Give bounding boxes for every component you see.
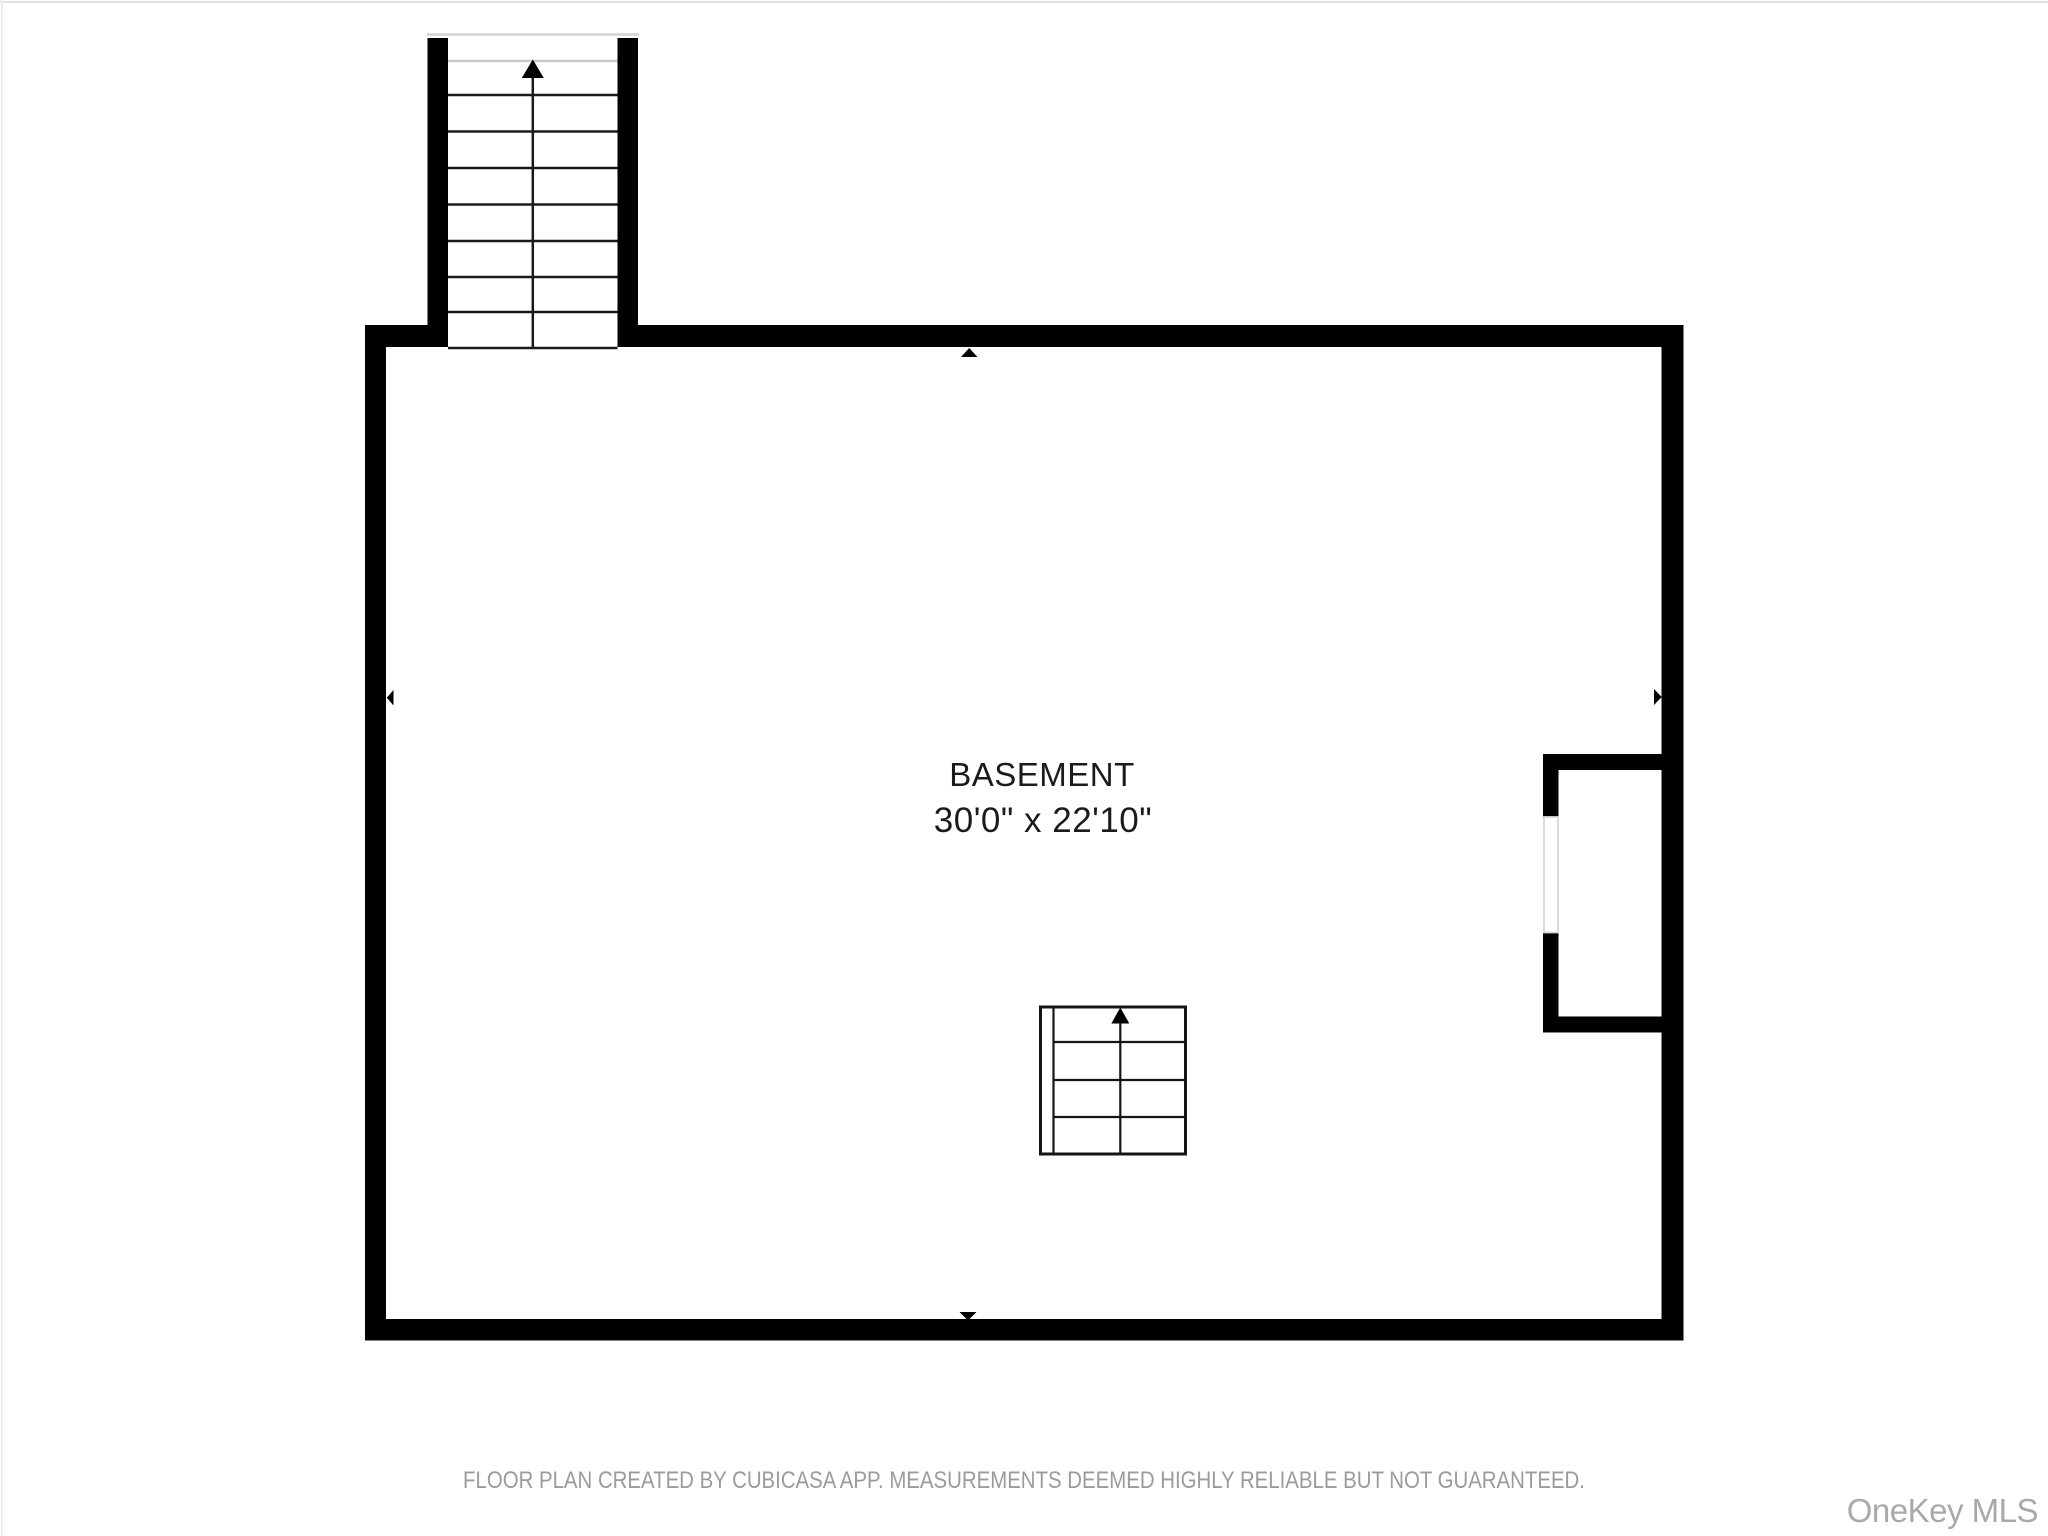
watermark-onekey-mls: OneKey MLS (1847, 1492, 2038, 1530)
wall-marker-right-icon (1654, 689, 1662, 705)
upper-staircase (427, 35, 639, 350)
floor-plan-canvas: BASEMENT 30'0" x 22'10" (0, 0, 2048, 1536)
room-name-label: BASEMENT (949, 756, 1135, 793)
bottom-wall (365, 1319, 1684, 1341)
floor-plan-page: BASEMENT 30'0" x 22'10" FLOOR PLAN CREAT… (0, 0, 2048, 1536)
right-wall (1662, 325, 1684, 1341)
basement-staircase (1041, 1007, 1186, 1154)
wall-marker-top-icon (961, 348, 978, 357)
alcove-left-wall-lower (1543, 933, 1559, 1033)
stairs-up-arrow-icon (522, 60, 544, 79)
footer-disclaimer: FLOOR PLAN CREATED BY CUBICASA APP. MEAS… (154, 1467, 1895, 1495)
top-wall-right-segment (618, 325, 1684, 347)
alcove-top-wall (1543, 754, 1662, 770)
alcove-bottom-wall (1543, 1017, 1662, 1033)
stairwell-left-wall (428, 38, 449, 347)
wall-marker-left-icon (387, 690, 394, 706)
room-dimensions-label: 30'0" x 22'10" (934, 801, 1152, 840)
top-wall-left-segment (365, 325, 448, 347)
alcove-left-wall-upper (1543, 754, 1559, 817)
alcove (1543, 754, 1662, 1033)
left-wall (365, 325, 386, 1341)
stairwell-right-wall (618, 38, 639, 347)
wall-opening (1544, 817, 1558, 933)
